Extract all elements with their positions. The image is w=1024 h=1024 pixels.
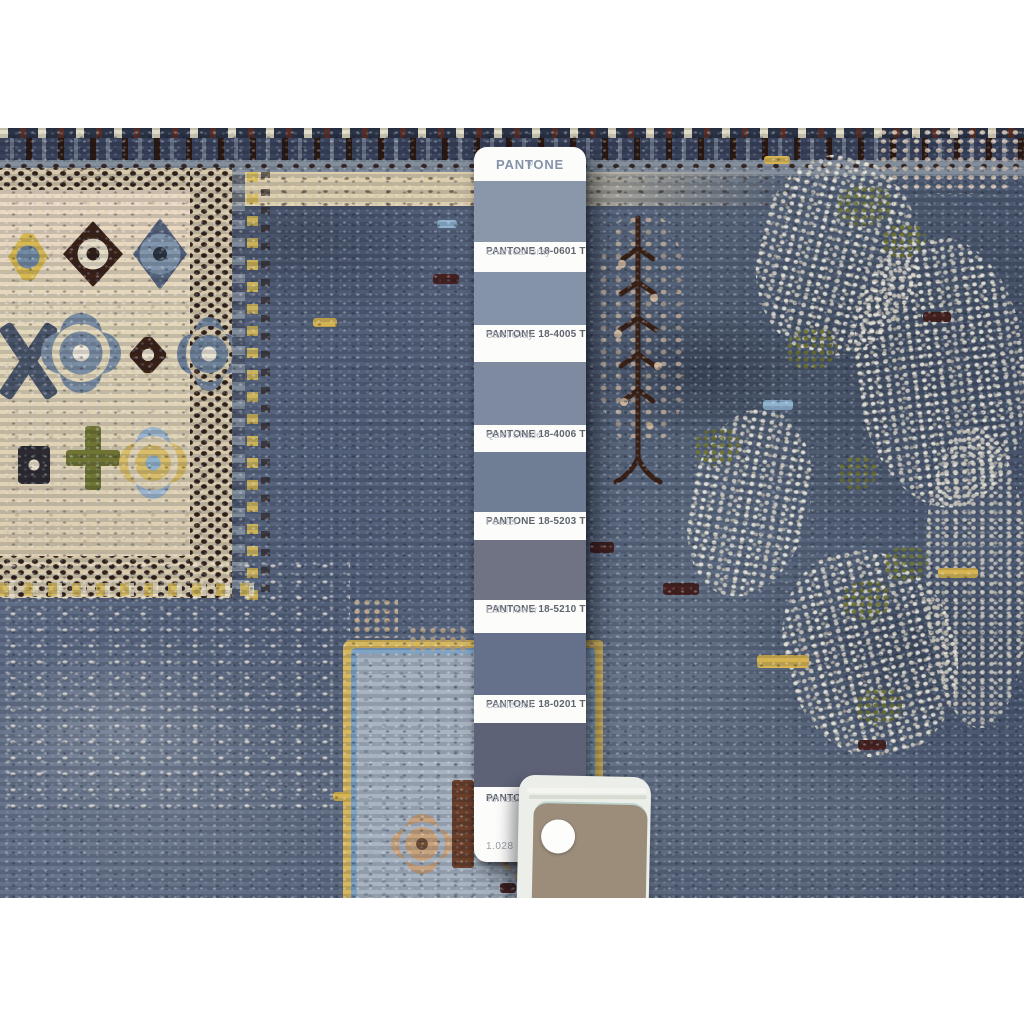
tan-cluster	[408, 626, 470, 652]
bottom-left-flecks	[0, 558, 350, 808]
maroon-fleck	[923, 312, 951, 322]
chip-pewter	[474, 452, 586, 512]
motif-blue-rosette	[52, 324, 110, 382]
motif-gold-blue-rosette	[128, 436, 178, 490]
guard-stripe-gray	[232, 168, 245, 598]
maroon-fleck	[590, 542, 614, 553]
olive-leaf-cluster	[838, 456, 878, 490]
rug-medallion-panel	[0, 168, 232, 598]
deck-card-edge-line	[527, 788, 647, 793]
rust-streak	[452, 780, 474, 868]
blue-fleck	[763, 400, 793, 410]
corner-panel-rosette	[399, 822, 445, 866]
maroon-fleck	[433, 274, 459, 284]
gold-fleck	[938, 568, 978, 578]
rug-top-right-cluster	[878, 128, 1024, 194]
page-number: 1.028	[486, 841, 514, 852]
label-quiet-shade: PANTONE 18-4006 TPGQuiet Shade	[474, 425, 586, 452]
panel-border-right	[190, 168, 232, 598]
olive-leaf-cluster	[786, 328, 838, 370]
photo-canvas: PANTONE® PANTONE 18-0601 TPGCharcoal Gra…	[0, 128, 1024, 898]
label-castlerock: PANTONE 18-0201 TPGCastlerock	[474, 695, 586, 723]
fan-deck-back	[517, 775, 652, 898]
registered-mark-icon: ®	[528, 161, 534, 168]
maroon-fleck	[500, 883, 516, 893]
guard-stripe-yellow	[247, 164, 258, 600]
gold-fleck	[757, 655, 809, 668]
rivet-hole	[541, 819, 576, 854]
chip-eiffel-tower	[474, 540, 586, 600]
gold-fleck	[313, 318, 337, 327]
motif-x-shape	[0, 318, 56, 404]
chip-castlerock	[474, 633, 586, 695]
gold-fleck	[764, 156, 790, 164]
deck-back-cover	[532, 801, 648, 898]
guard-stripe-dotted	[261, 172, 270, 592]
gold-fleck	[333, 792, 351, 801]
chip-steel-gray	[474, 272, 586, 325]
chip-quiet-shade	[474, 362, 586, 425]
chip-charcoal-gray	[474, 181, 586, 242]
blue-fleck	[437, 220, 457, 228]
pantone-strip: PANTONE® PANTONE 18-0601 TPGCharcoal Gra…	[474, 147, 586, 862]
label-eiffel-tower: PANTONE 18-5210 TPGEiffel Tower	[474, 600, 586, 633]
maroon-fleck	[663, 583, 699, 595]
label-steel-gray: PANTONE 18-4005 TPGSteel Gray	[474, 325, 586, 362]
motif-olive-cross	[66, 426, 120, 490]
tan-cluster	[352, 598, 398, 638]
maroon-fleck	[858, 740, 886, 750]
label-charcoal-gray: PANTONE 18-0601 TPGCharcoal Gray	[474, 242, 586, 272]
motif-blue-rosette-2	[186, 326, 232, 382]
motif-dark-square	[18, 446, 50, 484]
deck-card-edge-line	[529, 795, 647, 799]
pantone-brand: PANTONE®	[474, 147, 586, 181]
rug-tree-motif	[588, 206, 688, 516]
label-pewter: PANTONE 18-5203 TPGPewter	[474, 512, 586, 540]
